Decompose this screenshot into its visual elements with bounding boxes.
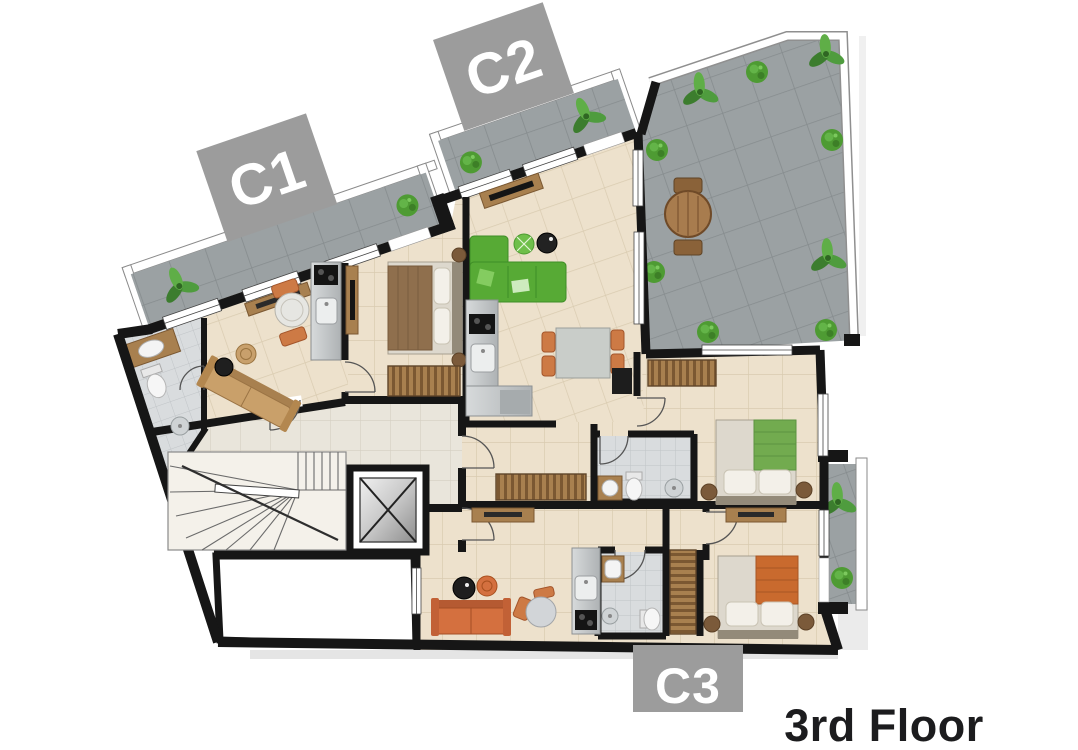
bed-pillow xyxy=(761,602,793,626)
plant-icon xyxy=(697,321,719,343)
terrace-c2-main xyxy=(641,34,860,352)
bed-blanket xyxy=(754,420,796,470)
nightstand xyxy=(704,616,720,632)
sink-icon xyxy=(602,480,618,496)
chair xyxy=(611,330,624,350)
kitchen-counter xyxy=(466,300,498,386)
floor-plan-page: C1 C2 xyxy=(0,0,1078,750)
railing-post xyxy=(844,334,860,346)
coffee-table-c2 xyxy=(537,233,557,253)
bed-c2 xyxy=(701,420,812,505)
kitchen-sink xyxy=(316,298,337,324)
bed-pillow xyxy=(724,470,756,494)
plant-icon xyxy=(815,319,837,341)
kitchen-c3 xyxy=(572,548,600,634)
nightstand xyxy=(798,614,814,630)
bed-pillow xyxy=(434,268,450,304)
window-bedroom-c3-east xyxy=(819,510,829,602)
plant-icon xyxy=(646,139,668,161)
sofa-c3 xyxy=(431,598,511,636)
terrace-chair xyxy=(674,240,702,255)
floor-title: 3rd Floor xyxy=(784,700,984,750)
nightstand xyxy=(452,353,466,367)
unit-label-c3: C3 xyxy=(655,658,721,714)
plant-icon xyxy=(831,567,853,589)
balcony-door-c3 xyxy=(819,558,829,602)
plant-icon xyxy=(821,129,843,151)
cooktop-icon xyxy=(469,314,495,334)
kitchen-sink xyxy=(471,344,495,372)
bed-headboard xyxy=(452,262,462,354)
bed-blanket xyxy=(388,266,432,350)
pouf-c3-black xyxy=(453,577,475,599)
plant-icon xyxy=(746,61,768,83)
nightstand xyxy=(796,482,812,498)
cooktop-icon xyxy=(314,265,338,285)
staircase xyxy=(168,452,346,550)
window-bedroom-c2-east xyxy=(818,394,828,456)
coffee-table-c1 xyxy=(215,358,233,376)
bed-pillow xyxy=(434,308,450,344)
pouf-c3-orange xyxy=(477,576,497,596)
sofa-pillow xyxy=(511,279,530,293)
table-c3 xyxy=(526,597,556,627)
window-terrace-west xyxy=(633,150,644,324)
chair xyxy=(542,356,555,376)
nightstand xyxy=(452,248,466,262)
wardrobe-c3 xyxy=(670,550,696,634)
elevator xyxy=(350,468,426,552)
wardrobe-c2-hall xyxy=(496,474,586,500)
terrace-floor xyxy=(641,34,857,352)
toilet-icon xyxy=(626,478,642,500)
pouf-c1 xyxy=(236,344,256,364)
lightwell xyxy=(216,556,416,646)
fridge-c2 xyxy=(612,368,632,394)
dining-table-c2 xyxy=(556,328,610,378)
cooktop-icon xyxy=(575,610,597,630)
bed-c3 xyxy=(704,556,814,639)
sink-icon xyxy=(605,560,621,578)
window-bedroom-c2-terrace xyxy=(702,345,792,355)
chair xyxy=(542,332,555,352)
console-c3-living xyxy=(472,508,534,522)
bed-c1 xyxy=(388,248,466,367)
bed-pillow xyxy=(759,470,791,494)
bed-headboard xyxy=(716,496,796,505)
toilet-icon xyxy=(644,608,660,630)
bed-headboard xyxy=(718,630,798,639)
dining-table-c1 xyxy=(275,293,309,327)
balcony-railing xyxy=(856,458,867,610)
terrace-shadow-right xyxy=(859,36,866,336)
wardrobe-c1 xyxy=(388,366,460,396)
tv-console-c1-bedroom xyxy=(346,266,358,334)
nightstand xyxy=(701,484,717,500)
wardrobe-c2-bedroom xyxy=(648,360,716,386)
tv-console-c3-bedroom xyxy=(726,508,786,522)
floor-plan-drawing: C1 C2 xyxy=(0,0,1078,750)
kitchen-c1 xyxy=(311,262,341,360)
kitchen-sink xyxy=(575,576,597,600)
bed-pillow xyxy=(726,602,758,626)
